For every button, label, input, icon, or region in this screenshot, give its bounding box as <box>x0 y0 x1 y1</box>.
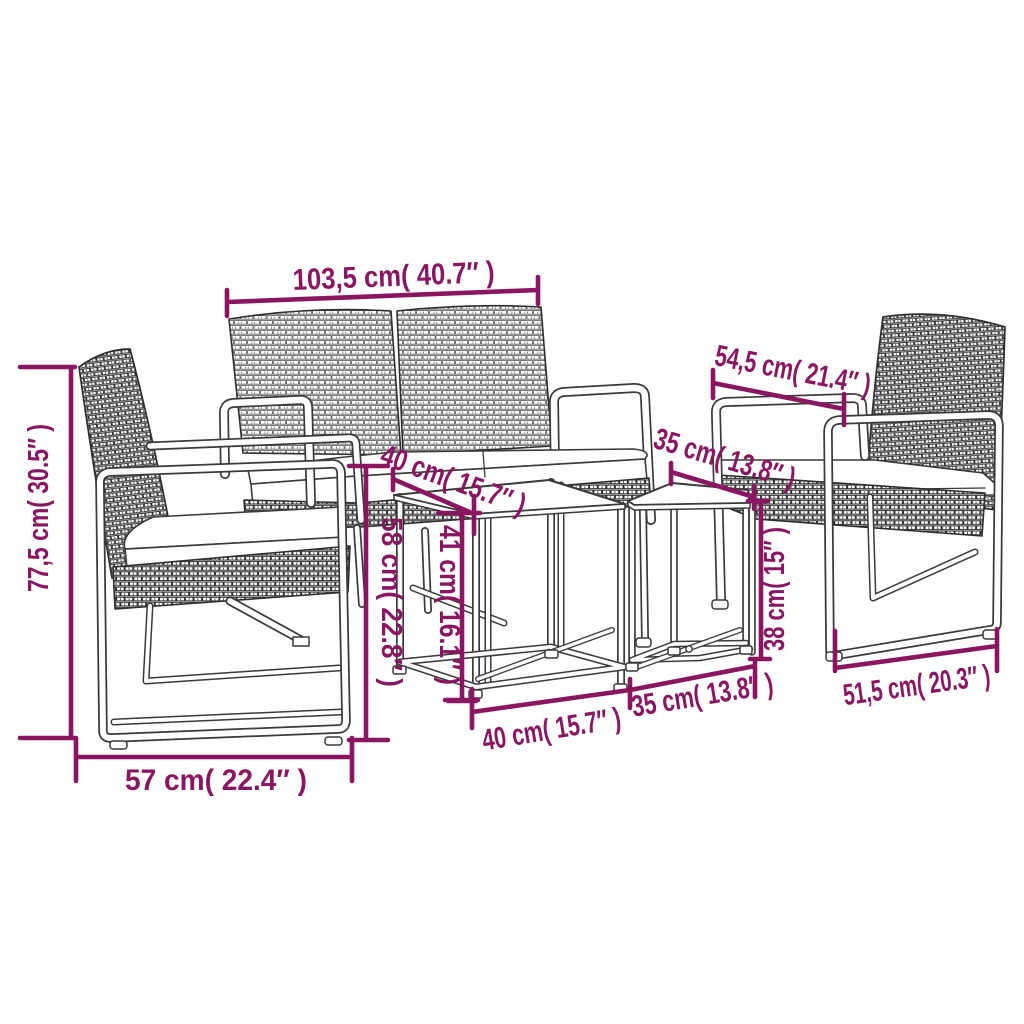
svg-text:57 cm( 22.4″ ): 57 cm( 22.4″ ) <box>125 764 307 797</box>
svg-text:77,5 cm( 30.5″ ): 77,5 cm( 30.5″ ) <box>23 424 55 592</box>
svg-text:54,5 cm( 21.4″ ): 54,5 cm( 21.4″ ) <box>712 339 873 402</box>
svg-text:51,5 cm( 20.3″ ): 51,5 cm( 20.3″ ) <box>841 659 992 712</box>
svg-text:58 cm( 22.8″ ): 58 cm( 22.8″ ) <box>375 517 407 687</box>
svg-text:41 cm( 16.1″ ): 41 cm( 16.1″ ) <box>433 525 465 685</box>
svg-text:38 cm( 15″ ): 38 cm( 15″ ) <box>759 527 791 651</box>
